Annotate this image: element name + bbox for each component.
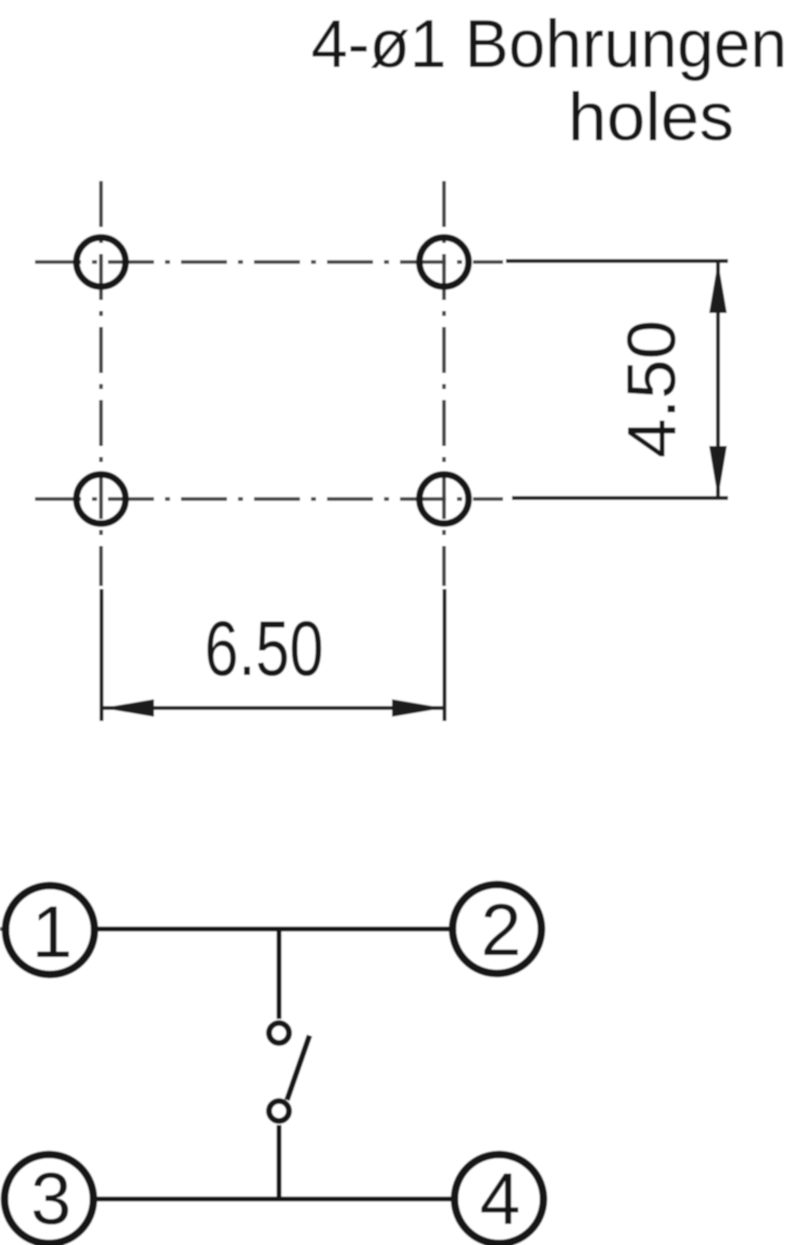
svg-text:2: 2 [481,890,522,971]
svg-text:3: 3 [31,1159,72,1240]
svg-text:4.50: 4.50 [613,320,690,458]
svg-text:6.50: 6.50 [205,604,324,692]
svg-text:4: 4 [480,1159,521,1240]
svg-text:4-ø1 Bohrungen: 4-ø1 Bohrungen [311,6,787,82]
svg-text:holes: holes [568,79,734,155]
svg-text:1: 1 [32,892,73,973]
